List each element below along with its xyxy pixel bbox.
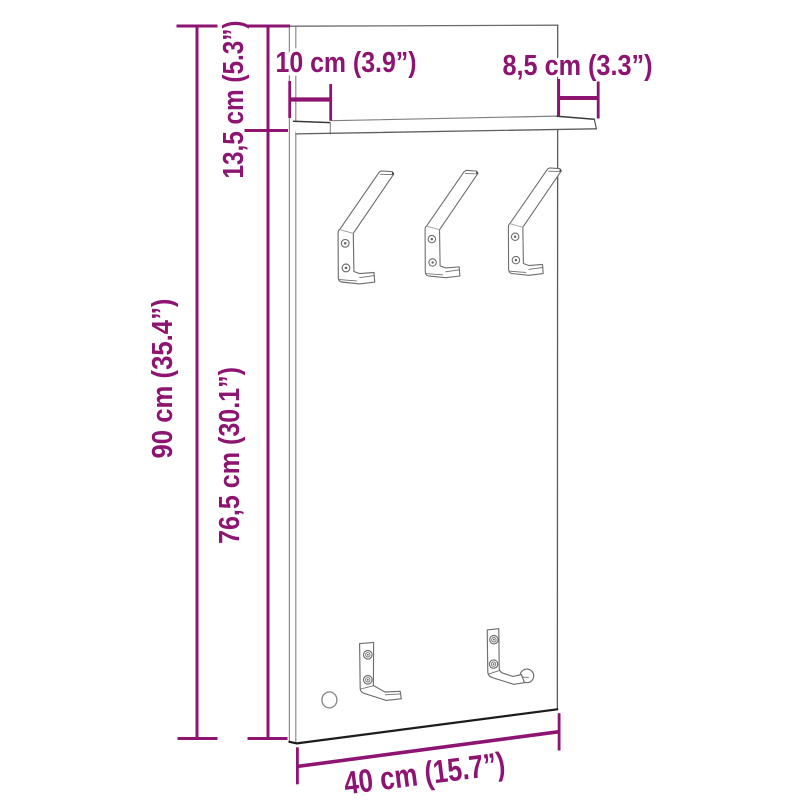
svg-text:13,5 cm (5.3”): 13,5 cm (5.3”): [218, 21, 250, 179]
svg-text:76,5 cm (30.1”): 76,5 cm (30.1”): [214, 367, 246, 544]
svg-text:8,5 cm (3.3”): 8,5 cm (3.3”): [503, 50, 653, 82]
svg-text:90 cm (35.4”): 90 cm (35.4”): [147, 299, 179, 459]
svg-text:10 cm (3.9”): 10 cm (3.9”): [276, 47, 417, 79]
